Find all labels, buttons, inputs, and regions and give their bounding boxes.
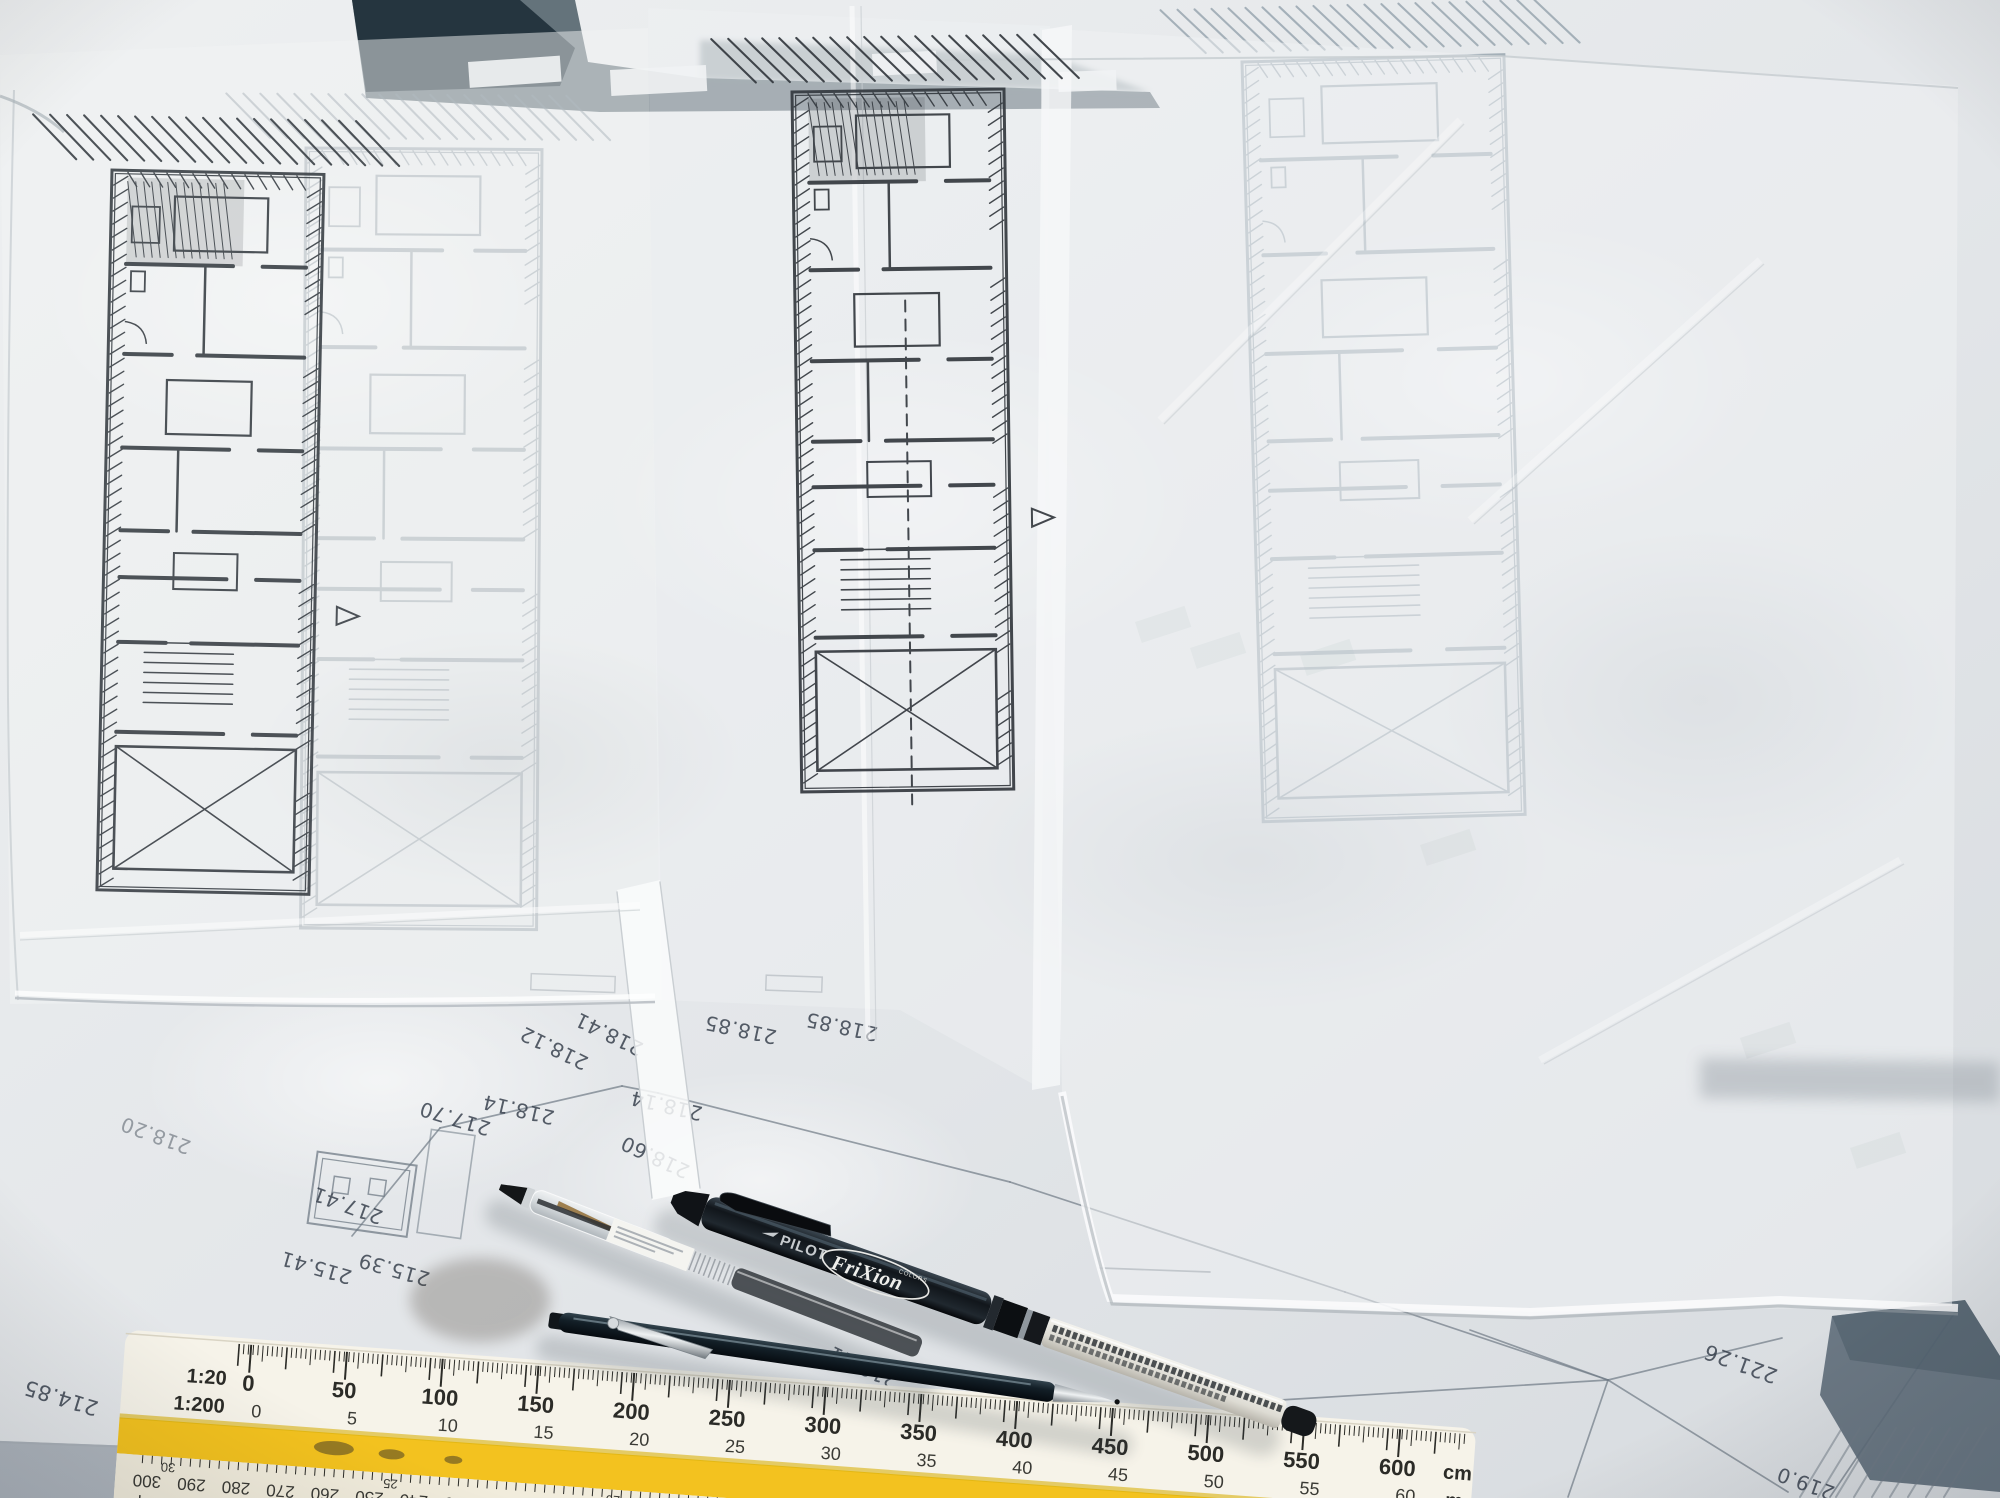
photo-vignette bbox=[0, 0, 2000, 1498]
photo-canvas: 217.70218.14218.14218.85218.85218.12218.… bbox=[0, 0, 2000, 1498]
desk-photo: 217.70218.14218.14218.85218.85218.12218.… bbox=[0, 0, 2000, 1498]
